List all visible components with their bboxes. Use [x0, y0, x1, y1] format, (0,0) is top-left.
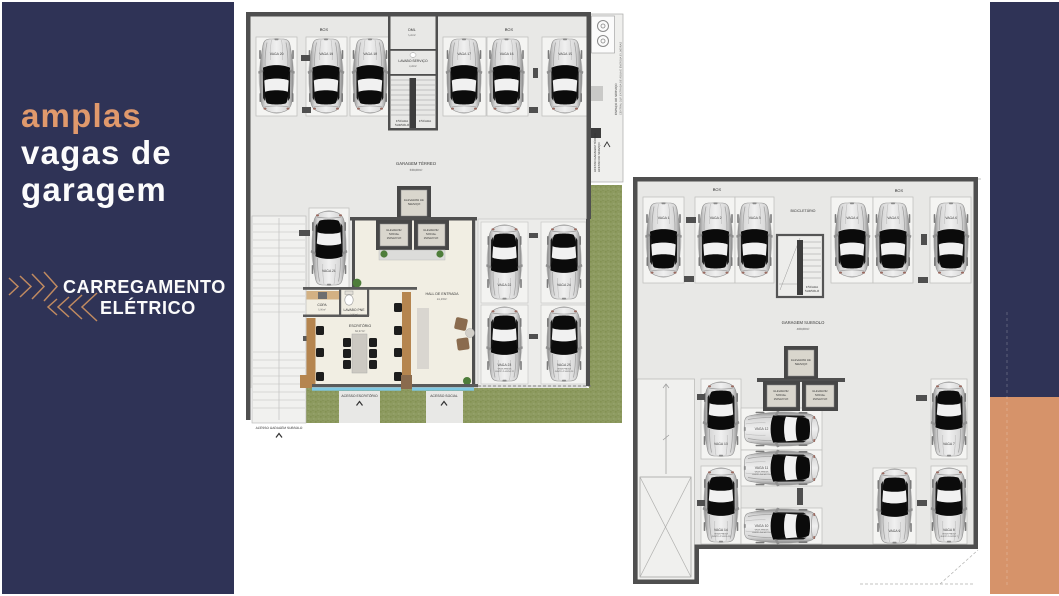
svg-text:ESCADA: ESCADA [419, 119, 431, 123]
svg-text:PRIVATIVO: PRIVATIVO [813, 397, 828, 401]
svg-text:SUBSOLO: SUBSOLO [395, 123, 410, 127]
svg-text:VAGA 9: VAGA 9 [888, 529, 900, 533]
svg-text:GARAGEM TÉRREO: GARAGEM TÉRREO [396, 161, 437, 166]
svg-text:BOX: BOX [895, 188, 904, 193]
svg-text:PRIVATIVO: PRIVATIVO [424, 236, 439, 240]
svg-text:HALL DE ENTRADA: HALL DE ENTRADA [425, 292, 459, 296]
svg-text:VAGA 13: VAGA 13 [714, 442, 728, 446]
svg-text:VAGA 1: VAGA 1 [658, 216, 670, 220]
svg-text:VAGA 15: VAGA 15 [558, 52, 572, 56]
svg-text:SERVIÇO: SERVIÇO [795, 362, 808, 366]
svg-text:VAGA 25: VAGA 25 [557, 363, 571, 367]
svg-text:JUNTO À VAGA 13: JUNTO À VAGA 13 [712, 535, 732, 538]
svg-text:ESPAÇO DE SERVIÇO: ESPAÇO DE SERVIÇO [614, 83, 618, 115]
svg-text:VAGA PRESA: VAGA PRESA [557, 368, 571, 371]
svg-text:3,28m²: 3,28m² [409, 65, 417, 68]
svg-text:VAGA 10: VAGA 10 [755, 524, 769, 528]
svg-text:LAVABO PNE: LAVABO PNE [344, 308, 366, 312]
svg-text:VAGA 6: VAGA 6 [945, 216, 957, 220]
svg-text:VAGA 18: VAGA 18 [363, 52, 377, 56]
svg-text:LAVABO SERVIÇO: LAVABO SERVIÇO [398, 59, 428, 63]
svg-text:VAGA 17: VAGA 17 [457, 52, 471, 56]
svg-text:VAGA 14: VAGA 14 [714, 528, 728, 532]
svg-text:ACESSO DE SERVIÇO: ACESSO DE SERVIÇO [597, 142, 601, 172]
svg-text:VAGA 23: VAGA 23 [498, 363, 512, 367]
svg-text:ACESSO GARAGEM SUBSOLO: ACESSO GARAGEM SUBSOLO [256, 426, 303, 430]
svg-text:VAGA 19: VAGA 19 [319, 52, 333, 56]
svg-text:BOX: BOX [713, 187, 722, 192]
svg-text:VAGA 4: VAGA 4 [846, 216, 858, 220]
svg-text:VAGA PRESA: VAGA PRESA [755, 470, 769, 473]
svg-text:41,23m²: 41,23m² [437, 297, 447, 301]
svg-text:SUBSOLO: SUBSOLO [805, 289, 820, 293]
svg-text:400,00m²: 400,00m² [797, 327, 810, 331]
svg-text:GARAGEM SUBSOLO: GARAGEM SUBSOLO [782, 320, 826, 325]
svg-text:ACESSO ESCRITÓRIO: ACESSO ESCRITÓRIO [341, 394, 378, 398]
svg-text:JUNTO À VAGA 22: JUNTO À VAGA 22 [495, 370, 515, 373]
svg-text:JUNTO À VAGA 24: JUNTO À VAGA 24 [555, 370, 575, 373]
svg-text:330,00m²: 330,00m² [410, 168, 423, 172]
svg-text:BOX: BOX [320, 27, 329, 32]
svg-text:CENTRAL GLP, ENTRADA DE ÁGUA E: CENTRAL GLP, ENTRADA DE ÁGUA E ENERGIA E… [619, 42, 623, 115]
svg-text:VAGA 7: VAGA 7 [943, 442, 955, 446]
svg-text:VAGA 24: VAGA 24 [557, 283, 571, 287]
svg-text:VAGA 20: VAGA 20 [270, 52, 284, 56]
svg-text:JUNTO À VAGA 7: JUNTO À VAGA 7 [940, 535, 958, 538]
svg-text:VAGA 8: VAGA 8 [943, 528, 955, 532]
svg-text:VAGA PRESA: VAGA PRESA [942, 533, 956, 536]
svg-text:VAGA PRESA: VAGA PRESA [714, 533, 728, 536]
svg-text:COPA: COPA [317, 303, 327, 307]
svg-text:VAGA PRESA: VAGA PRESA [755, 528, 769, 531]
svg-text:5,26m²: 5,26m² [408, 34, 416, 37]
svg-text:5,00m²: 5,00m² [318, 309, 326, 312]
svg-text:DML: DML [408, 28, 416, 32]
svg-text:JUNTO ÀS VAGAS: JUNTO ÀS VAGAS [752, 473, 771, 476]
svg-text:VAGA 11: VAGA 11 [755, 466, 769, 470]
svg-text:JUNTO ÀS VAGAS: JUNTO ÀS VAGAS [752, 531, 771, 534]
svg-text:VAGA 21: VAGA 21 [322, 269, 336, 273]
svg-text:34,97m²: 34,97m² [355, 329, 365, 333]
svg-text:VAGA 16: VAGA 16 [500, 52, 514, 56]
svg-text:BICICLETÁRIO: BICICLETÁRIO [791, 208, 816, 213]
svg-text:VAGA 5: VAGA 5 [887, 216, 899, 220]
svg-text:BOX: BOX [505, 27, 514, 32]
svg-text:VAGA PRESA: VAGA PRESA [498, 368, 512, 371]
svg-text:VAGA 2: VAGA 2 [710, 216, 722, 220]
svg-text:VAGA 22: VAGA 22 [498, 283, 512, 287]
svg-text:VAGA 12: VAGA 12 [755, 427, 769, 431]
svg-text:ESCRITÓRIO: ESCRITÓRIO [349, 323, 372, 328]
svg-text:PRIVATIVO: PRIVATIVO [774, 397, 789, 401]
svg-text:PRIVATIVO: PRIVATIVO [387, 236, 402, 240]
svg-text:SERVIÇO: SERVIÇO [408, 202, 421, 206]
svg-text:ACESSO SOCIAL: ACESSO SOCIAL [430, 394, 458, 398]
svg-text:VAGA 3: VAGA 3 [749, 216, 761, 220]
